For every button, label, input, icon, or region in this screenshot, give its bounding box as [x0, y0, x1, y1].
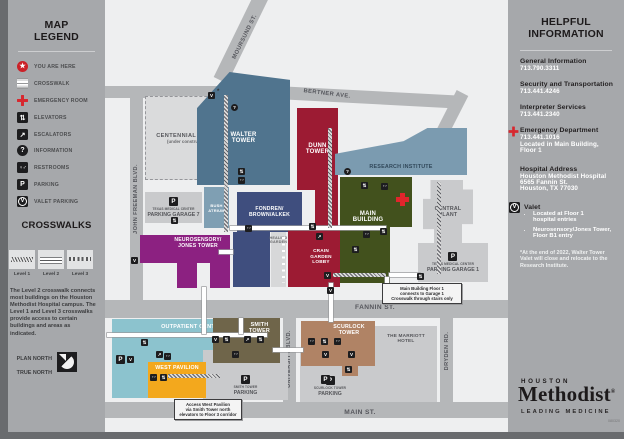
logo-tagline: LEADING MEDICINE: [521, 409, 611, 415]
info-entry-label: Emergency Department: [520, 127, 598, 134]
elevator-icon: [352, 246, 359, 253]
restroom-icon: [308, 338, 315, 345]
valet-icon: [322, 351, 329, 358]
street-label-fannin: FANNIN ST.: [335, 304, 415, 311]
legend-label: RESTROOMS: [34, 165, 69, 171]
street-main: [105, 402, 508, 418]
crosswalk-hatched: [328, 128, 332, 228]
building-research-institute: RESEARCH INSTITUTE: [335, 128, 467, 175]
restroom-icon: [363, 231, 370, 238]
restroom-icon: [17, 162, 28, 173]
restroom-icon: [381, 183, 388, 190]
building-label-research: RESEARCH INSTITUTE: [369, 164, 432, 170]
escalator-icon: [316, 233, 323, 240]
scurlock-parking-sub: SCURLOCK TOWER: [314, 386, 346, 390]
information-icon: [344, 168, 351, 175]
callout-garage1: Main Building Floor 1 connects to Garage…: [382, 283, 462, 304]
elevator-icon: [321, 338, 328, 345]
valet-bullet: Neurosensory/Jones Tower, Floor B1 entry: [533, 228, 624, 240]
elevator-icon: [361, 182, 368, 189]
info-entry-label: General Information: [520, 58, 586, 65]
valet-icon: [324, 272, 331, 279]
crosswalk-level3-label: Level 3: [67, 272, 93, 277]
legend-item-you-are-here: YOU ARE HERE: [17, 61, 76, 72]
valet-icon: [127, 356, 134, 363]
crosswalk-level2-swatch: [38, 250, 64, 269]
information-icon: [231, 104, 238, 111]
legend-label: ESCALATORS: [34, 132, 71, 138]
building-label-main: MAIN BUILDING: [353, 211, 384, 223]
building-label-dunn: DUNN TOWER: [306, 143, 329, 155]
legend-label: YOU ARE HERE: [34, 64, 76, 70]
valet-icon: [212, 336, 219, 343]
street-label-john-freeman: JOHN FREEMAN BLVD.: [133, 159, 139, 239]
logo-methodist: Methodist®: [518, 382, 615, 407]
true-north-label: TRUE NORTH: [12, 370, 52, 376]
info-entry-phone: 713.441.4246: [520, 89, 560, 95]
elevator-icon: [309, 223, 316, 230]
crosswalks-description: The Level 2 crosswalk connects most buil…: [10, 288, 96, 338]
valet-bullet: Located at Floor 1 hospital entries: [533, 212, 624, 224]
street-label-dryden: DRYDEN RD.: [444, 311, 450, 391]
elevator-icon: [345, 366, 352, 373]
valet-icon: [509, 202, 520, 213]
legend-label: EMERGENCY ROOM: [34, 98, 88, 104]
campus-map-page: MOURSUND ST. BERTNER AVE. JOHN FREEMAN B…: [0, 0, 624, 439]
compass-icon: [57, 352, 77, 372]
emergency-room-icon: [509, 127, 519, 137]
building-healing-garden: HEALING GARDEN: [271, 232, 286, 287]
info-entry-phone: 713.790.3311: [520, 66, 559, 72]
information-icon: [17, 145, 28, 156]
building-label-crain: CRAIN GARDEN LOBBY: [310, 248, 332, 265]
valet-icon: [327, 287, 334, 294]
street-label-main: MAIN ST.: [330, 409, 390, 416]
parking-icon: [169, 197, 178, 206]
building-neurosensory: NEUROSENSORY/ JONES TOWER: [140, 235, 230, 263]
legend-item-escalators: ESCALATORS: [17, 129, 71, 140]
garage7-sub: TEXAS MEDICAL CENTER: [153, 207, 195, 211]
elevator-icon: [417, 273, 424, 280]
restroom-icon: [334, 338, 341, 345]
parking-icon: [321, 375, 330, 384]
crosswalk-hatched: [333, 273, 386, 277]
emergency-room-icon: [396, 193, 409, 206]
building-garage1: TEXAS MEDICAL CENTER PARKING GARAGE 1: [418, 243, 488, 282]
document-number: 080320: [608, 419, 620, 423]
crosswalk-corridor: [202, 287, 206, 334]
building-label-bush: BUSH ATRIUM: [208, 203, 224, 213]
crosswalk-hatched: [437, 182, 441, 274]
legend-label: PARKING: [34, 182, 59, 188]
building-label-healing: HEALING GARDEN: [270, 236, 288, 244]
crosswalk-level1-label: Level 1: [9, 272, 35, 277]
valet-icon: [131, 257, 138, 264]
crosswalk-corridor: [230, 226, 386, 230]
logo-registered-mark: ®: [611, 389, 616, 395]
smith-parking-sub: SMITH TOWER: [234, 385, 258, 389]
legend-item-parking: PARKING: [17, 179, 59, 190]
building-neurosensory-leg1: [177, 263, 197, 288]
valet-footnote: *At the end of 2022, Walter Tower Valet …: [520, 250, 616, 269]
page-left-edge: [0, 0, 8, 439]
crosswalk-hatched: [168, 374, 220, 378]
crosswalk-hatched: [224, 95, 228, 232]
building-fondren-lower: [233, 232, 270, 287]
elevator-icon: [380, 228, 387, 235]
info-divider: [520, 50, 612, 51]
elevator-icon: [238, 168, 245, 175]
legend-item-information: INFORMATION: [17, 145, 72, 156]
building-label-west-pavilion: WEST PAVILION: [155, 365, 199, 371]
map-legend-panel: MAP LEGEND YOU ARE HERE CROSSWALK EMERGE…: [8, 0, 105, 432]
logo-methodist-word: Methodist: [518, 382, 611, 406]
legend-label: ELEVATORS: [34, 115, 67, 121]
legend-label: INFORMATION: [34, 148, 72, 154]
elevator-icon: [160, 374, 167, 381]
parking-icon: [241, 375, 250, 384]
info-entry-phone: 713.441.2340: [520, 112, 560, 118]
valet-icon: [348, 351, 355, 358]
restroom-icon: [150, 374, 157, 381]
escalator-icon: [156, 351, 163, 358]
crosswalk-corridor: [273, 348, 303, 352]
elevator-icon: [141, 339, 148, 346]
elevator-icon: [257, 336, 264, 343]
building-central-plant: CENTRAL PLANT: [423, 180, 473, 243]
crosswalk-level3-swatch: [67, 250, 93, 269]
parking-icon: [17, 179, 28, 190]
valet-icon: [17, 196, 28, 207]
emergency-room-icon: [17, 95, 28, 106]
parking-icon: [448, 252, 457, 261]
parking-icon: [116, 355, 125, 364]
smith-parking-name: PARKING: [234, 390, 258, 396]
legend-item-emergency-room: EMERGENCY ROOM: [17, 95, 88, 106]
garage1-name: PARKING GARAGE 1: [427, 267, 479, 273]
legend-label: CROSSWALK: [34, 81, 70, 87]
info-entry-label: Hospital Address: [520, 166, 577, 173]
scurlock-parking-name: PARKING: [318, 391, 342, 397]
crosswalk-level1-swatch: [9, 250, 35, 269]
info-entry-label: Valet: [524, 204, 540, 211]
crosswalk-level2-label: Level 2: [38, 272, 64, 277]
info-entry-label: Security and Transportation: [520, 81, 613, 88]
healing-garden-dashes: [282, 237, 285, 283]
valet-bullet-list: Located at Floor 1 hospital entries Neur…: [526, 212, 624, 245]
legend-label: VALET PARKING: [34, 199, 78, 205]
info-entry-note: Located in Main Building, Floor 1: [520, 142, 599, 154]
crosswalk-corridor: [219, 250, 233, 254]
building-neurosensory-leg2: [210, 263, 230, 288]
restroom-icon: [232, 351, 239, 358]
campus-map: MOURSUND ST. BERTNER AVE. JOHN FREEMAN B…: [105, 0, 508, 432]
info-title: HELPFUL INFORMATION: [508, 17, 624, 40]
crosswalk-corridor: [239, 318, 243, 334]
page-bottom-edge: [0, 432, 624, 439]
building-label-scurlock: SCURLOCK TOWER: [333, 324, 365, 336]
escalator-icon: [244, 336, 251, 343]
building-label-walter: WALTER TOWER: [230, 132, 256, 144]
info-entry-note: Houston Methodist Hospital 6565 Fannin S…: [520, 174, 606, 193]
legend-item-valet-parking: VALET PARKING: [17, 196, 78, 207]
escalator-icon: [17, 129, 28, 140]
restroom-icon: [245, 225, 252, 232]
crosswalk-icon: [17, 78, 28, 89]
building-marriott: THE MARRIOTT HOTEL: [375, 326, 437, 350]
legend-item-restrooms: RESTROOMS: [17, 162, 69, 173]
restroom-icon: [238, 177, 245, 184]
legend-item-elevators: ELEVATORS: [17, 112, 67, 123]
crosswalks-title: CROSSWALKS: [8, 220, 105, 232]
building-label-marriott: THE MARRIOTT HOTEL: [387, 333, 425, 343]
crosswalk-corridor: [389, 273, 420, 277]
legend-item-crosswalk: CROSSWALK: [17, 78, 70, 89]
valet-asterisk: *: [217, 89, 220, 95]
elevator-icon: [171, 217, 178, 224]
restroom-icon: [164, 353, 171, 360]
valet-icon: [208, 92, 215, 99]
crosswalk-corridor: [107, 333, 267, 337]
building-label-fondren: FONDREN/ BROWN/ALKEK: [249, 206, 290, 218]
plan-north-label: PLAN NORTH: [12, 356, 52, 362]
you-are-here-icon: [17, 61, 28, 72]
helpful-information-panel: HELPFUL INFORMATION General Information …: [508, 0, 624, 432]
building-crain-lobby: CRAIN GARDEN LOBBY: [288, 226, 340, 287]
elevator-icon: [17, 112, 28, 123]
legend-title: MAP LEGEND: [8, 20, 105, 43]
legend-divider: [18, 51, 95, 52]
elevator-icon: [223, 336, 230, 343]
building-label-neurosensory: NEUROSENSORY/ JONES TOWER: [174, 237, 221, 249]
info-entry-label: Interpreter Services: [520, 104, 586, 111]
callout-west-pavilion: Access West Pavilion via Smith Tower nor…: [174, 399, 242, 420]
